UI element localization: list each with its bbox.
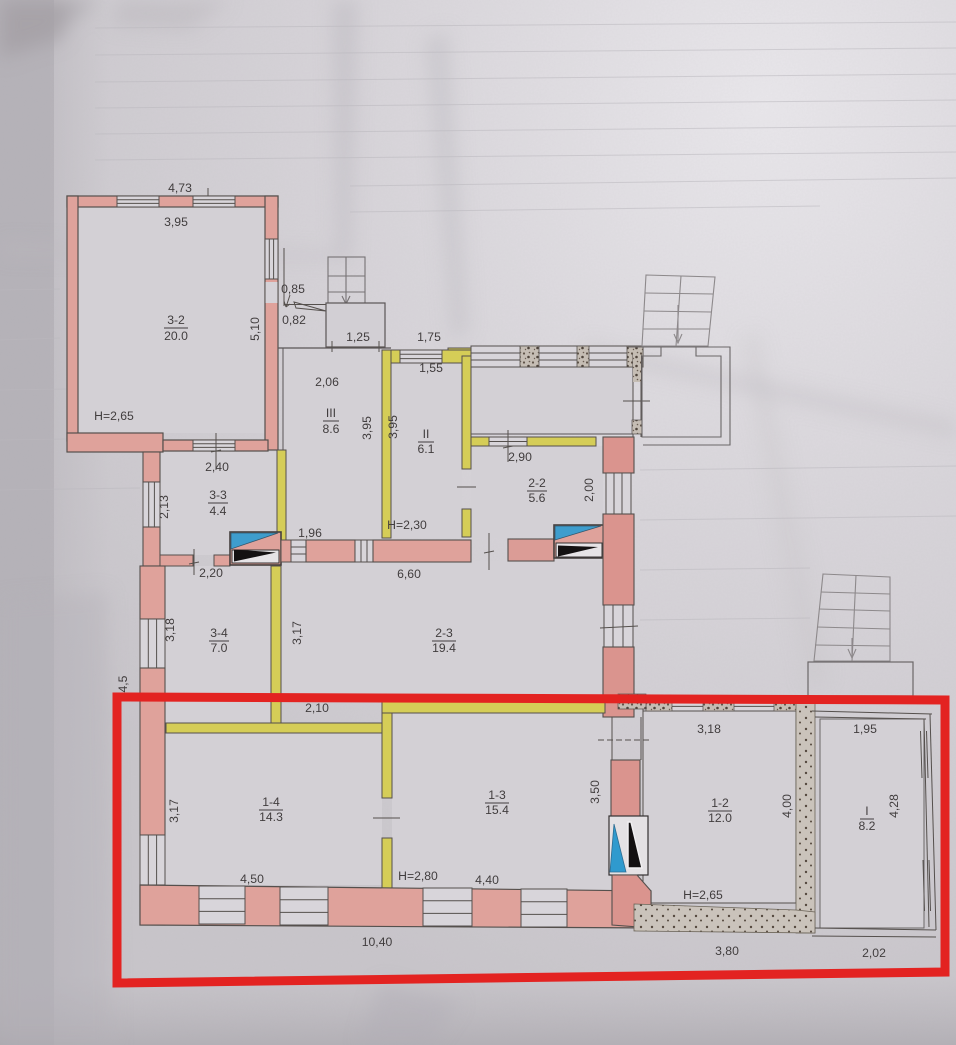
svg-text:3,17: 3,17 <box>167 799 181 823</box>
svg-text:3,18: 3,18 <box>163 618 177 642</box>
svg-text:3-3: 3-3 <box>209 488 227 502</box>
svg-text:2,20: 2,20 <box>199 566 223 580</box>
svg-text:H=2,65: H=2,65 <box>94 409 134 423</box>
svg-text:III: III <box>326 406 336 420</box>
svg-text:2,13: 2,13 <box>157 495 171 519</box>
svg-text:8.2: 8.2 <box>859 819 876 833</box>
svg-text:4,50: 4,50 <box>240 872 264 886</box>
svg-text:1,95: 1,95 <box>853 722 877 736</box>
svg-text:1-3: 1-3 <box>488 788 506 802</box>
svg-text:H=2,80: H=2,80 <box>398 869 438 883</box>
svg-text:0,85: 0,85 <box>281 282 305 296</box>
svg-text:4.4: 4.4 <box>210 504 227 518</box>
svg-text:1-4: 1-4 <box>262 795 280 809</box>
svg-text:3,80: 3,80 <box>715 944 739 958</box>
svg-text:4,73: 4,73 <box>168 181 192 195</box>
svg-text:5.6: 5.6 <box>529 491 546 505</box>
svg-text:3,95: 3,95 <box>386 415 400 439</box>
svg-text:19.4: 19.4 <box>432 641 456 655</box>
svg-text:1-2: 1-2 <box>711 796 729 810</box>
svg-text:3-4: 3-4 <box>210 626 228 640</box>
svg-text:H=2,65: H=2,65 <box>683 888 723 902</box>
svg-text:7.0: 7.0 <box>211 641 228 655</box>
svg-text:3,17: 3,17 <box>290 621 304 645</box>
svg-text:H=2,30: H=2,30 <box>387 518 427 532</box>
svg-text:0,82: 0,82 <box>282 313 306 327</box>
svg-text:3-2: 3-2 <box>167 313 185 327</box>
svg-text:4,40: 4,40 <box>475 873 499 887</box>
svg-text:4,00: 4,00 <box>780 794 794 818</box>
svg-text:II: II <box>423 427 430 441</box>
svg-text:4,5: 4,5 <box>116 675 130 692</box>
svg-text:5,10: 5,10 <box>248 317 262 341</box>
svg-text:2,02: 2,02 <box>862 946 886 960</box>
svg-text:1,25: 1,25 <box>346 330 370 344</box>
svg-text:3,95: 3,95 <box>164 215 188 229</box>
svg-text:3,18: 3,18 <box>697 722 721 736</box>
svg-text:20.0: 20.0 <box>164 329 188 343</box>
svg-text:2,10: 2,10 <box>305 701 329 715</box>
svg-text:2-3: 2-3 <box>435 626 453 640</box>
svg-text:15.4: 15.4 <box>485 803 509 817</box>
svg-text:I: I <box>865 804 868 818</box>
svg-text:1,55: 1,55 <box>419 361 443 375</box>
svg-text:2,40: 2,40 <box>205 460 229 474</box>
svg-text:2,90: 2,90 <box>508 450 532 464</box>
svg-text:2,00: 2,00 <box>582 478 596 502</box>
svg-text:3,95: 3,95 <box>360 416 374 440</box>
svg-text:2-2: 2-2 <box>528 476 546 490</box>
svg-text:4,28: 4,28 <box>887 794 901 818</box>
svg-text:14.3: 14.3 <box>259 810 283 824</box>
svg-text:10,40: 10,40 <box>362 935 393 949</box>
svg-text:1,75: 1,75 <box>417 330 441 344</box>
svg-text:8.6: 8.6 <box>323 422 340 436</box>
svg-text:2,06: 2,06 <box>315 375 339 389</box>
svg-text:6.1: 6.1 <box>418 442 435 456</box>
svg-text:1,96: 1,96 <box>298 526 322 540</box>
svg-text:3,50: 3,50 <box>588 780 602 804</box>
svg-text:6,60: 6,60 <box>397 567 421 581</box>
svg-text:12.0: 12.0 <box>708 811 732 825</box>
